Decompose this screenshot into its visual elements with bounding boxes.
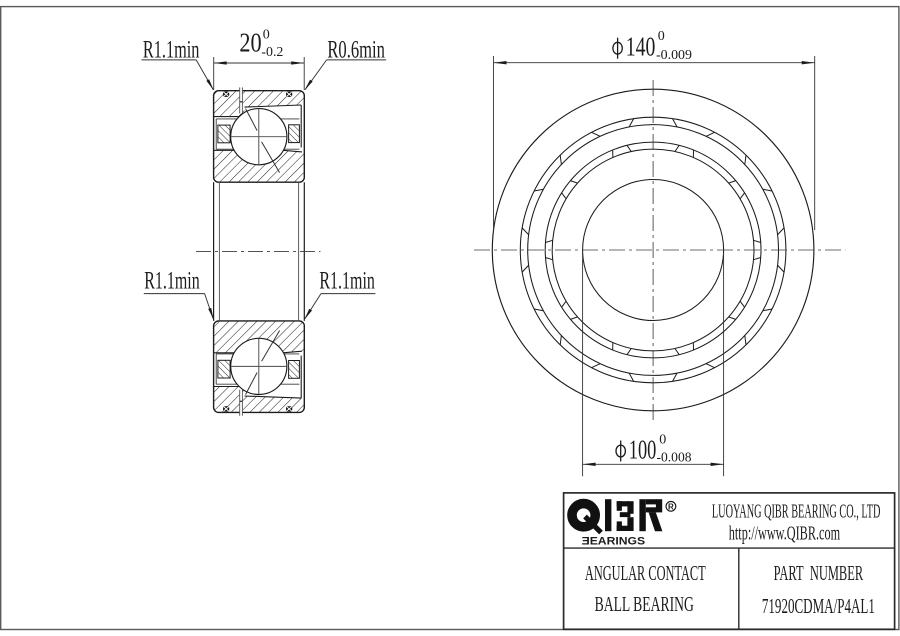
svg-text:ƎEARINGS: ƎEARINGS xyxy=(582,536,646,548)
svg-text:0: 0 xyxy=(659,433,666,448)
svg-text:71920CDMA/P4AL1: 71920CDMA/P4AL1 xyxy=(762,594,875,618)
svg-text:-0.008: -0.008 xyxy=(657,450,692,465)
svg-text:0: 0 xyxy=(263,28,270,43)
svg-text:BALL BEARING: BALL BEARING xyxy=(595,592,694,616)
svg-text:0: 0 xyxy=(658,29,665,44)
svg-text:140: 140 xyxy=(626,32,656,62)
svg-text:R1.1min: R1.1min xyxy=(144,268,200,295)
svg-text:-0.2: -0.2 xyxy=(261,45,283,60)
svg-text:20: 20 xyxy=(239,27,261,57)
svg-text:LUOYANG QIBR BEARING CO., LTD: LUOYANG QIBR BEARING CO., LTD xyxy=(712,500,881,522)
svg-text:http://www.QIBR.com: http://www.QIBR.com xyxy=(729,522,841,544)
svg-text:PART NUMBER: PART NUMBER xyxy=(774,561,864,585)
svg-text:R: R xyxy=(668,502,674,511)
svg-text:100: 100 xyxy=(629,435,657,465)
svg-text:ANGULAR CONTACT: ANGULAR CONTACT xyxy=(585,561,706,585)
svg-text:-0.009: -0.009 xyxy=(656,48,692,63)
svg-text:R1.1min: R1.1min xyxy=(319,268,375,295)
